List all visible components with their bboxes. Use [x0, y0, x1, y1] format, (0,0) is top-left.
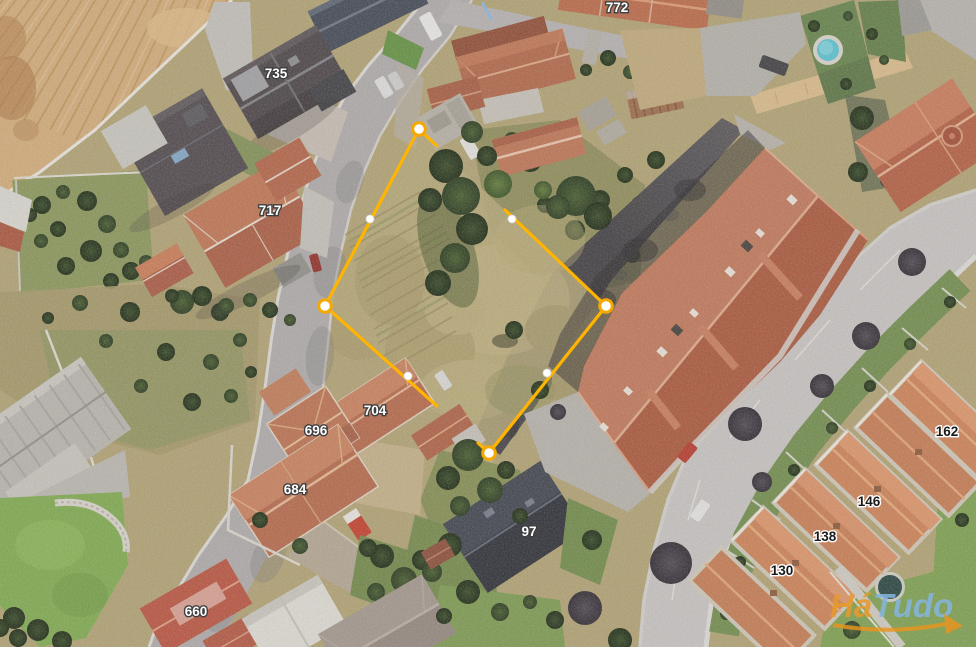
svg-text:138: 138: [814, 529, 837, 544]
svg-text:684: 684: [284, 482, 307, 497]
svg-text:717: 717: [259, 203, 282, 218]
svg-text:130: 130: [771, 563, 794, 578]
svg-text:735: 735: [265, 66, 288, 81]
svg-text:97: 97: [521, 524, 536, 539]
svg-text:660: 660: [185, 604, 208, 619]
svg-text:HáTudo: HáTudo: [830, 587, 953, 624]
svg-text:146: 146: [858, 494, 881, 509]
svg-text:772: 772: [606, 0, 629, 15]
svg-text:704: 704: [364, 403, 387, 418]
svg-text:696: 696: [305, 423, 328, 438]
svg-text:162: 162: [936, 424, 959, 439]
